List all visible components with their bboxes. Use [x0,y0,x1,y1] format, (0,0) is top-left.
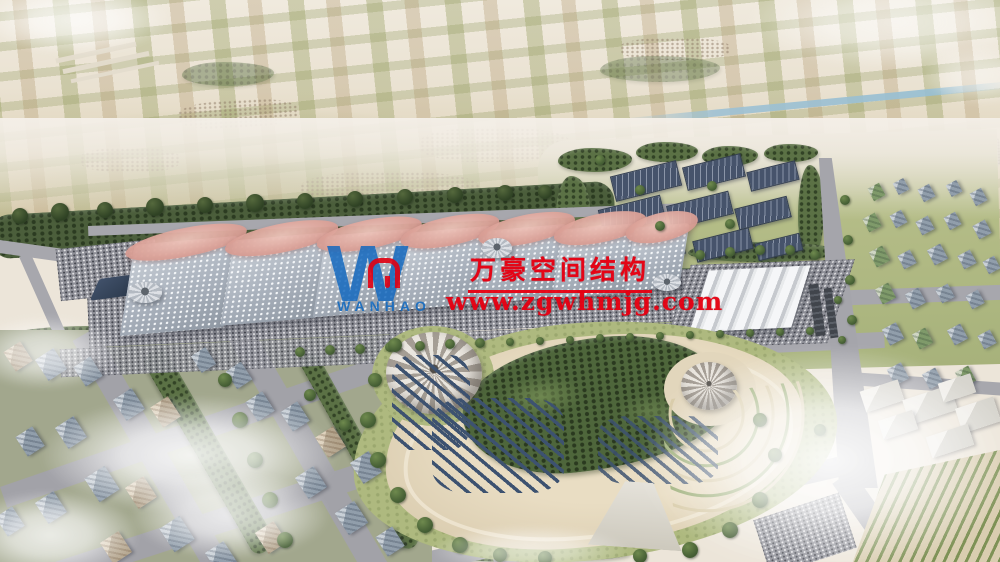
watermark: W WANHAO 万豪空间结构 www.zgwhmjg.com [0,0,1000,562]
logo-emblem-tail [385,276,390,288]
logo-emblem-icon [368,258,400,288]
watermark-website: www.zgwhmjg.com [446,287,723,316]
aerial-render-canvas: W WANHAO 万豪空间结构 www.zgwhmjg.com [0,0,1000,562]
logo-subtext: WANHAO [320,298,448,314]
wanhao-logo: W WANHAO [326,236,446,320]
